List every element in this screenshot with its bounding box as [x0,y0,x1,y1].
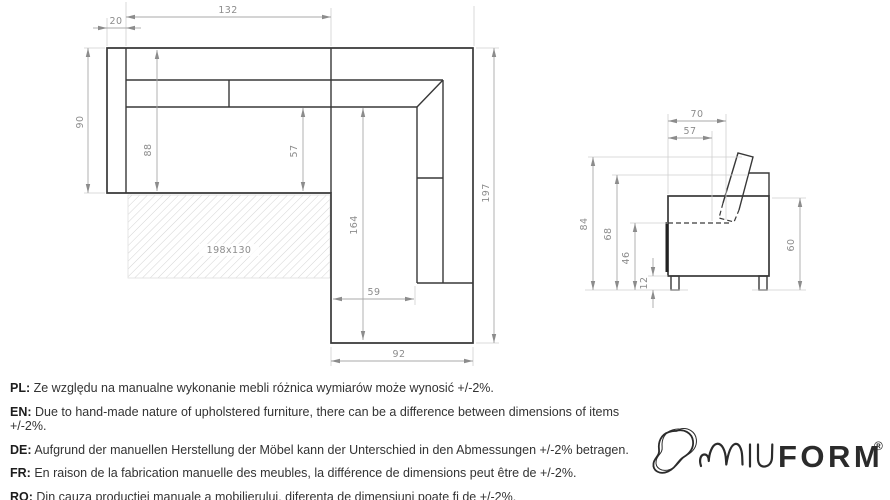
language-code: FR: [10,466,31,480]
dim-total-length: 197 [474,6,499,343]
side-backrest-band [749,173,769,196]
dim-side-leg-height: 12 [639,258,668,308]
dim-seat-width: 132 [126,5,331,46]
language-code: EN: [10,405,32,419]
dim-label: 57 [289,145,300,158]
dim-side-seat-depth: 57 [668,126,712,221]
side-view-body [667,153,769,290]
side-view: 70 57 84 68 [579,109,806,308]
dim-label: 88 [143,144,154,157]
disclaimer-line-en: EN: Due to hand-made nature of upholster… [10,405,630,434]
dim-label: 46 [621,252,632,265]
dim-label: 164 [349,215,360,234]
dim-label: 59 [368,287,381,298]
back-cushion-hidden [719,203,739,222]
side-view-dimensions: 70 57 84 68 [579,109,806,308]
dim-label: 70 [691,109,704,120]
brand-logo: FORM ® [648,412,890,498]
dim-label: 84 [579,218,590,231]
sleeping-area-hatch [128,195,330,278]
language-code: PL: [10,381,30,395]
disclaimer-line-pl: PL: Ze względu na manualne wykonanie meb… [10,381,630,396]
disclaimer-text: En raison de la fabrication manuelle des… [34,466,576,480]
language-code: DE: [10,443,32,457]
registered-mark: ® [874,439,883,453]
top-view-dimensions: 20 132 90 88 [75,2,499,366]
technical-drawing: 198x130 [0,0,890,375]
dim-chaise-seat-width: 59 [333,286,415,305]
dim-label: 57 [684,126,697,137]
disclaimer-notes: PL: Ze względu na manualne wykonanie meb… [10,381,630,500]
dim-label: 20 [110,16,123,27]
disclaimer-line-fr: FR: En raison de la fabrication manuelle… [10,466,630,481]
back-cushion [723,153,753,210]
dim-armrest-width: 20 [93,2,141,46]
top-view: 198x130 [75,2,499,366]
dim-seat-depth: 57 [289,108,303,191]
dim-chaise-width: 92 [331,347,473,366]
disclaimer-text: Aufgrund der manuellen Herstellung der M… [34,443,628,457]
corner-diagonal [417,80,443,107]
disclaimer-text: Din cauza producției manuale a mobilieru… [36,490,516,500]
sleeping-area-size-label: 198x130 [207,245,252,256]
dim-inner-depth: 88 [143,50,157,191]
back-leg [759,276,767,290]
dim-label: 68 [603,228,614,241]
dim-label: 60 [786,239,797,252]
language-code: RO: [10,490,33,500]
top-view-sleeping-area: 198x130 [128,195,330,278]
furniture-dimension-sheet: 198x130 [0,0,890,500]
dim-label: 92 [393,349,406,360]
disclaimer-line-ro: RO: Din cauza producției manuale a mobil… [10,490,630,500]
dim-side-total-depth: 70 [668,109,726,220]
dim-total-depth: 90 [75,48,105,193]
dim-label: 12 [639,277,650,290]
miu-script-icon [700,444,772,467]
disclaimer-text: Due to hand-made nature of upholstered f… [10,405,619,434]
disclaimer-line-de: DE: Aufgrund der manuellen Herstellung d… [10,443,630,458]
dim-chaise-length: 164 [349,108,363,340]
front-leg [671,276,679,290]
bean-icon [653,428,696,473]
disclaimer-text: Ze względu na manualne wykonanie mebli r… [34,381,494,395]
dim-label: 197 [481,183,492,202]
dim-label: 90 [75,116,86,129]
side-body [668,196,769,276]
brand-wordmark: FORM [778,439,883,474]
dim-label: 132 [218,5,237,16]
